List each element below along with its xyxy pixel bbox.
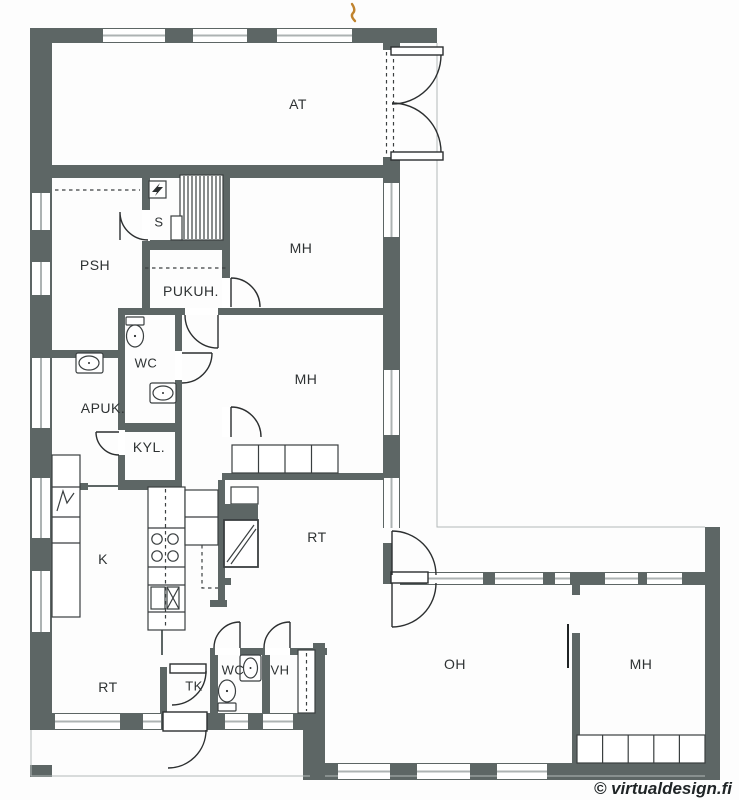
scan-mark [352,4,355,21]
toilet-icon-wc-mid [126,317,144,347]
room-label-psh: PSH [80,257,110,273]
door-wc-mid [175,351,212,383]
room-label-kyl: KYL. [133,439,165,455]
kitchen-counter-left [52,455,80,617]
exterior-walls [30,28,720,780]
room-label-mh-top: MH [290,240,313,256]
door-psh-s [120,210,150,241]
pillar [224,578,231,585]
toilet-icon-wc-bottom [218,680,236,711]
kitchen-cabinets-right [185,490,218,588]
windows [32,29,682,779]
room-label-k: K [98,551,108,567]
room-label-wc-mid: WC [135,356,158,371]
room-label-mh-mid: MH [295,371,318,387]
sink-icon-wc-mid [150,383,176,403]
room-label-mh-bottom: MH [630,656,653,672]
room-label-apuk: APUK. [81,400,126,416]
wardrobe-mh-mid [232,445,338,473]
room-label-rt-bottom: RT [98,679,117,695]
garage-door [383,47,443,160]
terrace-outline [31,43,705,776]
floor-plan: AT S PSH PUKUH. MH WC APUK. KYL. MH K RT… [0,0,739,800]
room-label-pukuh: PUKUH. [163,283,219,299]
room-label-s: S [154,215,163,230]
watermark: © virtualdesign.fi [560,779,732,799]
door-wc-bottom [214,622,240,655]
fireplace-icon [224,487,258,585]
door-pukuh [185,308,218,348]
room-label-at: AT [289,96,307,112]
door-vh [264,622,290,655]
door-kyl [96,430,125,455]
entrance-door [163,712,207,768]
door-mh-mid [222,407,261,437]
kitchen-sink-icon [151,587,179,609]
electrical-panel-icon [149,181,166,198]
room-label-wc-bottom: WC [222,663,245,678]
room-label-tk: TK [185,679,203,694]
kitchen-island [148,487,185,630]
wardrobe-mh-bottom [577,735,705,763]
door-mh-top [222,278,260,308]
room-label-vh: VH [270,663,289,678]
sink-icon-apuk [76,353,103,373]
room-label-rt-mid: RT [307,529,326,545]
stairs [171,175,223,240]
wardrobe-vh [298,650,315,713]
room-label-oh: OH [444,656,466,672]
